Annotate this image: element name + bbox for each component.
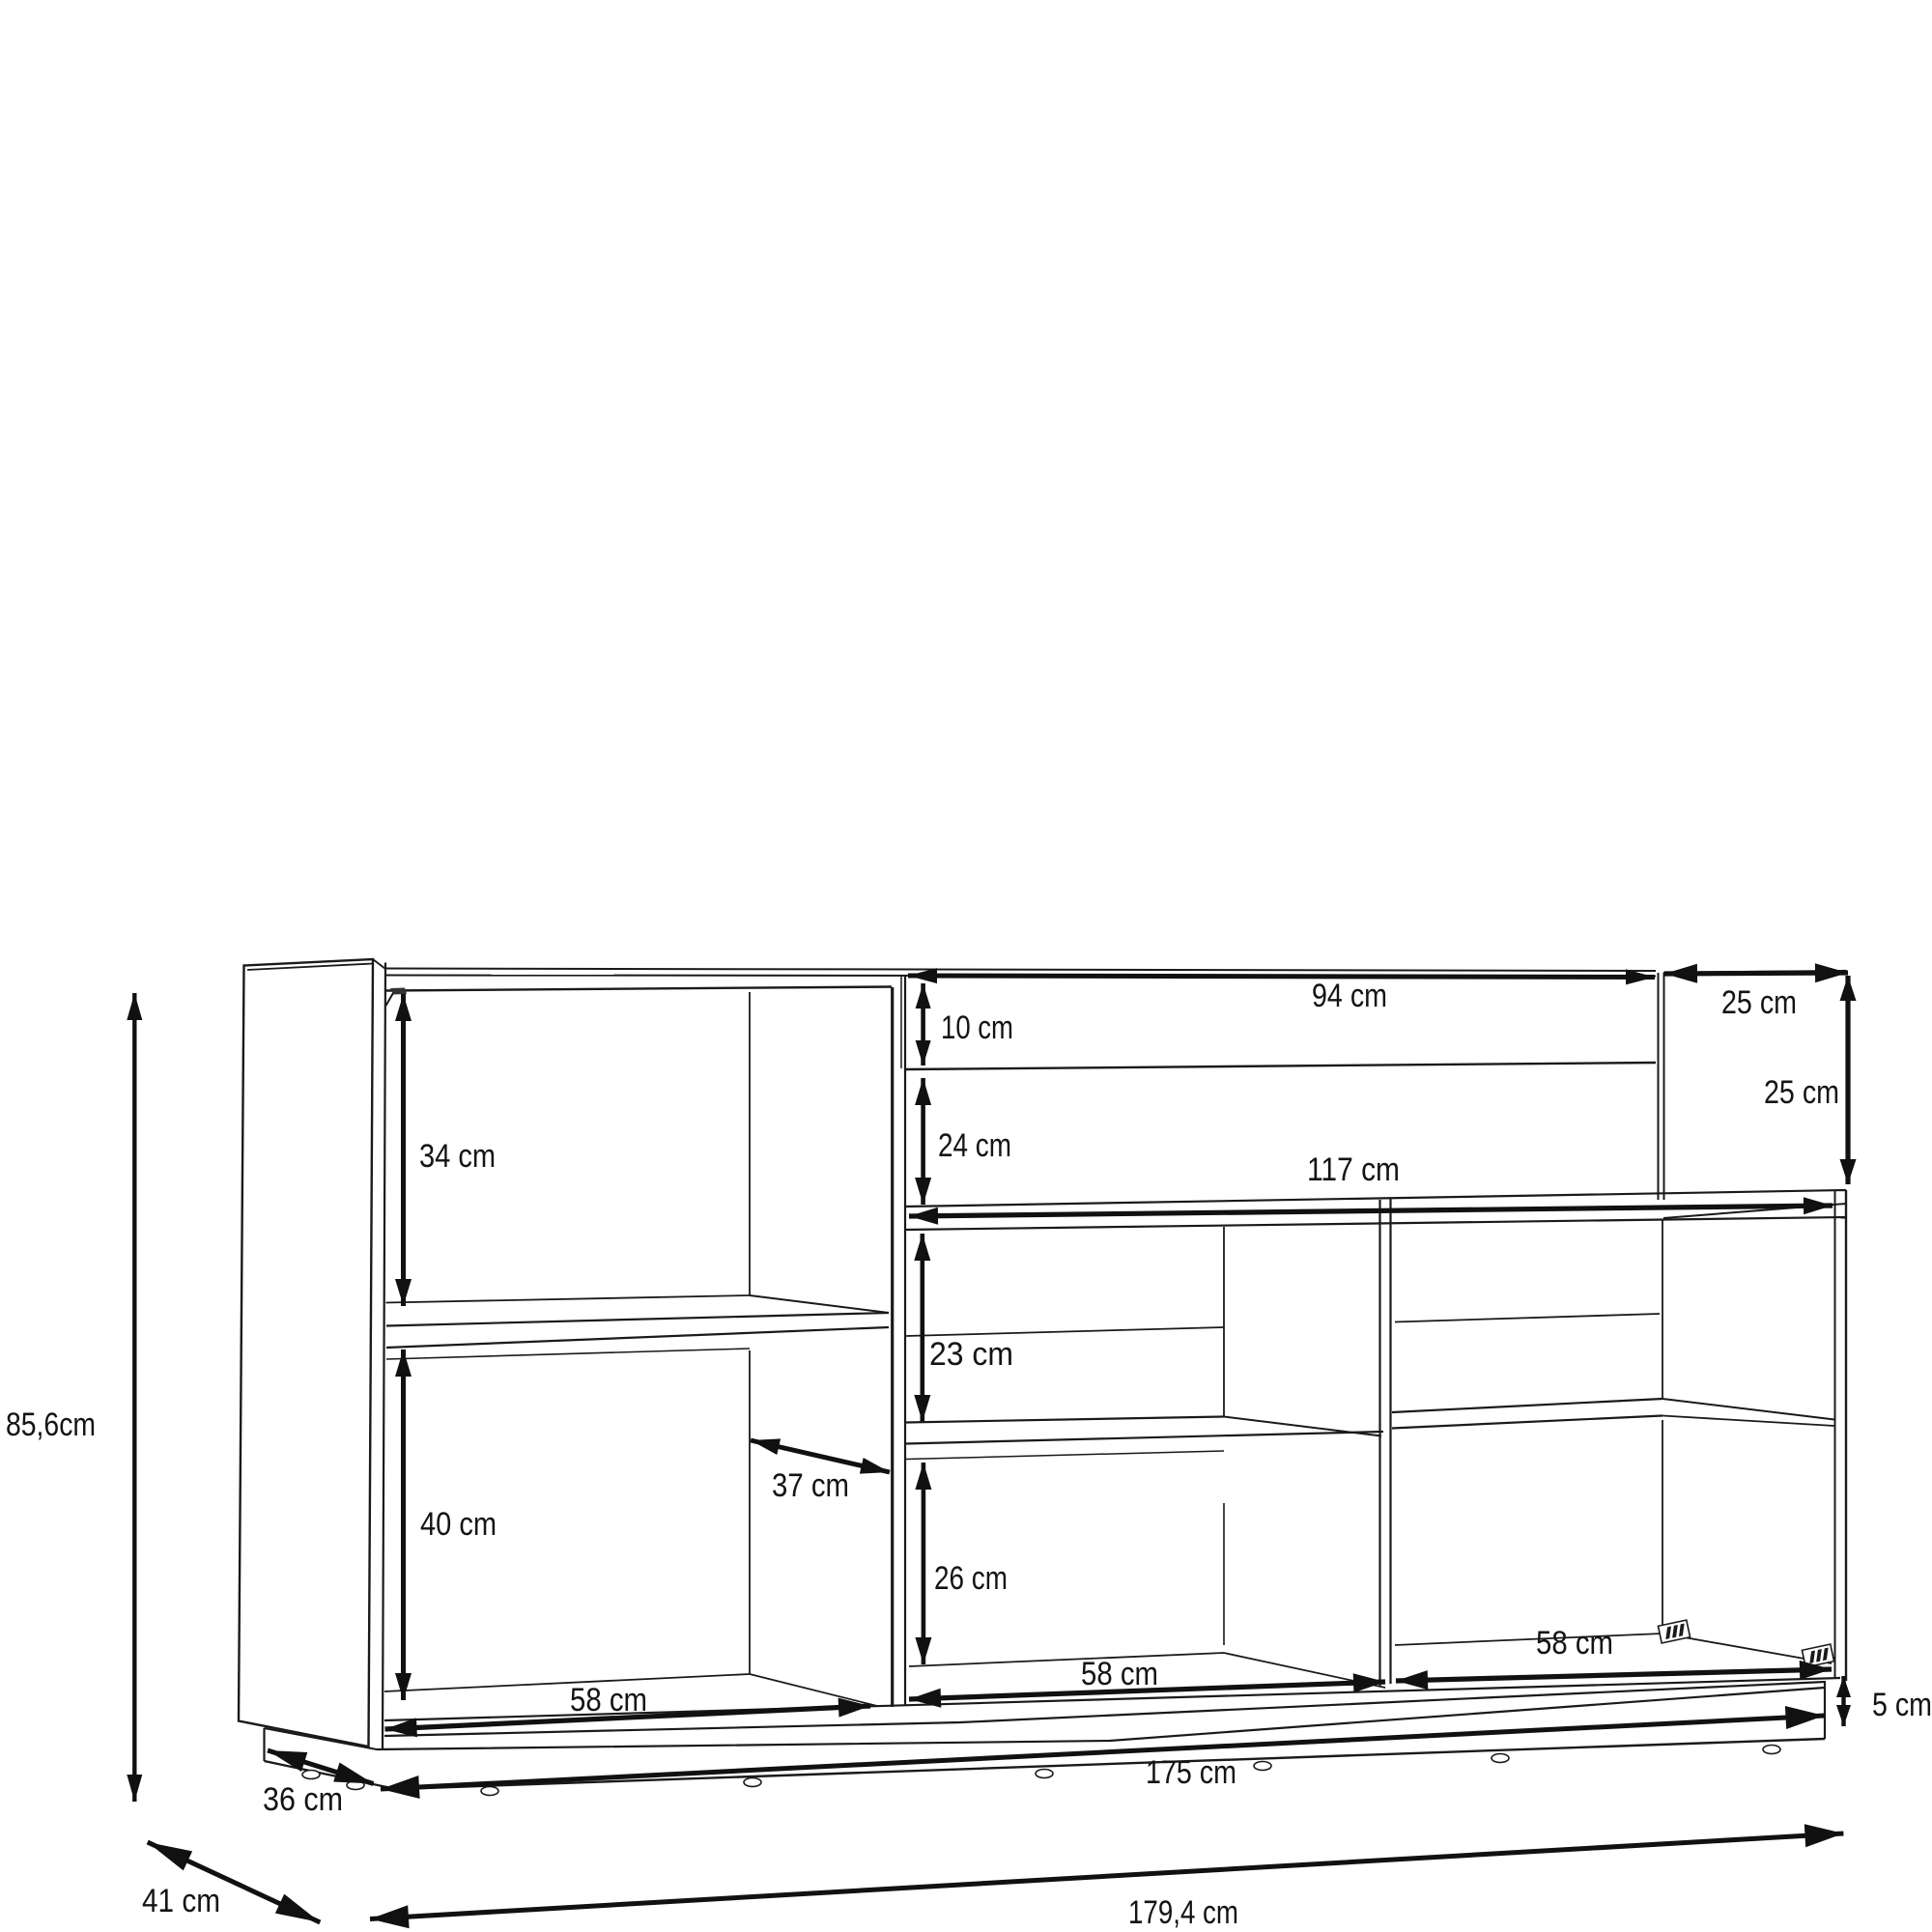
svg-text:25 cm: 25 cm <box>1721 984 1797 1021</box>
svg-text:58 cm: 58 cm <box>1536 1625 1613 1662</box>
svg-text:36 cm: 36 cm <box>263 1781 343 1818</box>
svg-text:85,6cm: 85,6cm <box>6 1406 96 1443</box>
svg-text:58 cm: 58 cm <box>1081 1656 1158 1692</box>
svg-text:25 cm: 25 cm <box>1764 1074 1839 1111</box>
svg-text:10 cm: 10 cm <box>941 1009 1013 1046</box>
svg-text:94 cm: 94 cm <box>1312 978 1387 1014</box>
svg-text:175 cm: 175 cm <box>1146 1754 1236 1791</box>
svg-text:24 cm: 24 cm <box>938 1127 1011 1164</box>
svg-text:117 cm: 117 cm <box>1307 1151 1400 1188</box>
svg-text:5 cm: 5 cm <box>1872 1687 1932 1723</box>
svg-text:58 cm: 58 cm <box>570 1682 647 1719</box>
svg-text:41 cm: 41 cm <box>142 1883 220 1919</box>
svg-text:26 cm: 26 cm <box>934 1560 1008 1597</box>
svg-text:37 cm: 37 cm <box>772 1467 849 1504</box>
svg-text:179,4 cm: 179,4 cm <box>1128 1894 1238 1931</box>
svg-text:40 cm: 40 cm <box>420 1506 497 1543</box>
svg-text:34 cm: 34 cm <box>419 1138 496 1175</box>
svg-text:23 cm: 23 cm <box>929 1336 1013 1373</box>
